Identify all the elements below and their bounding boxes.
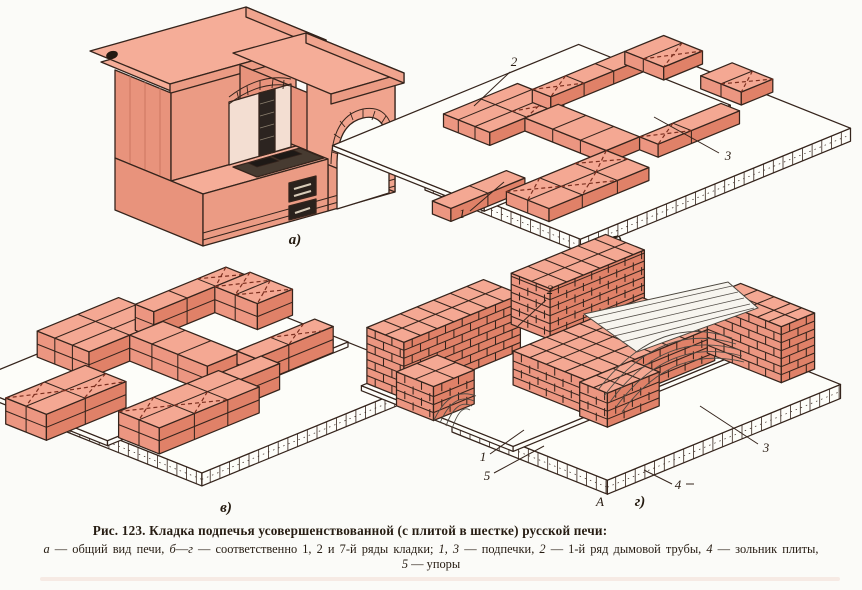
callout-label: 1 (480, 449, 487, 464)
callout-label: 3 (762, 440, 770, 455)
figure-letter-label: г) (635, 494, 646, 510)
callout-label: 3 (724, 148, 732, 163)
figure-letter-label: в) (220, 500, 232, 516)
scan-smudge-artifact (40, 577, 840, 581)
figure-caption-legend-2: 5 — упоры (0, 557, 862, 572)
callout-label: 2 (511, 54, 518, 69)
chimney-column (259, 89, 275, 156)
figure-a-stove-general-view: а) (55, 4, 405, 260)
callout-label: 5 (484, 468, 491, 483)
scanned-book-page: а) 231б) в) 23154Аг) Рис. 123. Кладка по… (0, 0, 862, 590)
figure-v-brick-course-2: в) (18, 280, 446, 526)
figure-letter-label: а) (289, 232, 302, 248)
figure-b-brick-course-1: 231б) (398, 14, 860, 260)
callout-label: 2 (547, 282, 554, 297)
stove-drawing (90, 7, 404, 246)
figure-caption-title: Рис. 123. Кладка подпечья усовершенствов… (0, 523, 700, 539)
callout-label: 1 (459, 206, 466, 221)
callout-label: А (595, 494, 604, 509)
callout-label: 4 (675, 477, 682, 492)
figure-caption-legend: а — общий вид печи, б—г — соответственно… (0, 542, 862, 557)
figure-g-brick-course-7: 23154Аг) (432, 244, 860, 520)
